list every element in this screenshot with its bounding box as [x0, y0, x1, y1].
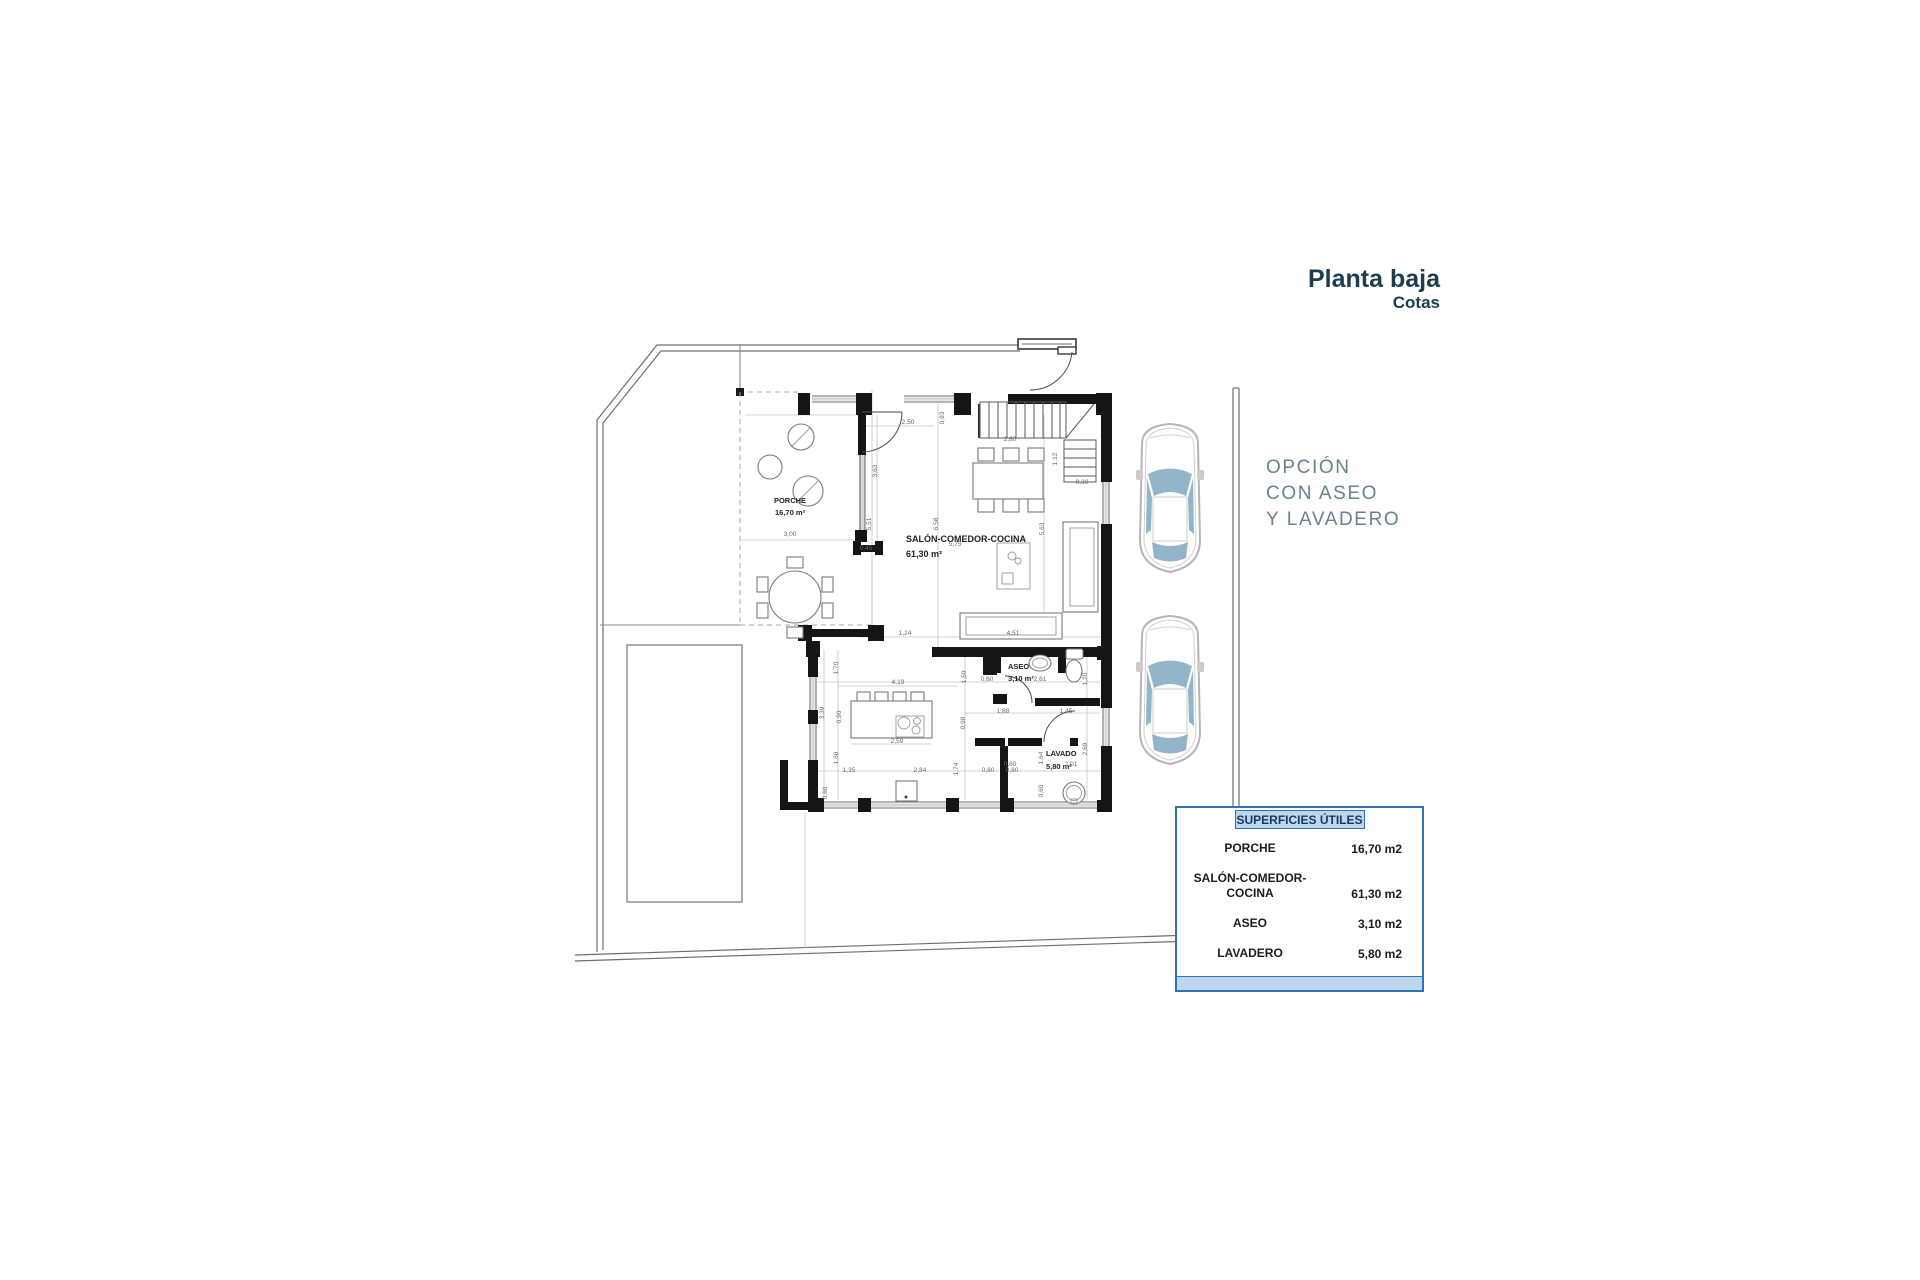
surface-area-value: 61,30 m2 [1309, 887, 1408, 901]
svg-text:4,51: 4,51 [1007, 630, 1020, 637]
lavadero-fixtures [1063, 782, 1085, 804]
coffee-table [997, 543, 1030, 589]
surface-area-value: 16,70 m2 [1309, 842, 1408, 856]
surfaces-table: SUPERFICIES ÚTILES PORCHE16,70 m2SALÓN-C… [1175, 806, 1424, 992]
svg-text:ASEO: ASEO [1008, 662, 1029, 671]
svg-text:0,90: 0,90 [836, 710, 843, 723]
surfaces-table-header: SUPERFICIES ÚTILES [1235, 810, 1365, 829]
dining-table [973, 448, 1044, 512]
surfaces-table-footer [1177, 976, 1422, 990]
svg-text:1,74: 1,74 [953, 762, 960, 775]
surfaces-table-row: PORCHE16,70 m2 [1191, 841, 1408, 856]
svg-text:0,93: 0,93 [939, 411, 946, 424]
svg-text:1,24: 1,24 [899, 630, 912, 637]
surface-name: ASEO [1191, 916, 1309, 931]
surface-area-value: 5,80 m2 [1309, 947, 1408, 961]
round-table [769, 571, 821, 623]
svg-text:6,58: 6,58 [933, 517, 940, 530]
svg-text:0,80: 0,80 [982, 767, 995, 774]
svg-text:1,60: 1,60 [833, 751, 840, 764]
floor-plan-drawing: PORCHE16,70 m²SALÓN-COMEDOR-COCINA61,30 … [0, 0, 1920, 1280]
svg-text:5,63: 5,63 [1039, 522, 1046, 535]
surface-name: PORCHE [1191, 841, 1309, 856]
floor-plan-page: { "title": { "heading": "Planta baja", "… [0, 0, 1920, 1280]
svg-text:1,20: 1,20 [1082, 672, 1089, 685]
svg-text:2,50: 2,50 [902, 419, 915, 426]
svg-text:0,45: 0,45 [860, 545, 873, 552]
svg-text:4,19: 4,19 [892, 679, 905, 686]
svg-text:3,00: 3,00 [784, 531, 797, 538]
option-note: OPCIÓN CON ASEO Y LAVADERO [1266, 455, 1400, 533]
svg-text:1,88: 1,88 [997, 708, 1010, 715]
svg-text:2,80: 2,80 [1004, 436, 1017, 443]
svg-text:1,12: 1,12 [1052, 452, 1059, 465]
svg-text:LAVADO: LAVADO [1046, 749, 1077, 758]
page-title: Planta baja [1140, 266, 1440, 293]
svg-text:5,51: 5,51 [866, 517, 873, 530]
option-note-line: CON ASEO [1266, 481, 1400, 507]
svg-text:2,69: 2,69 [1082, 742, 1089, 755]
svg-text:0,30: 0,30 [1076, 479, 1089, 486]
surfaces-table-row: ASEO3,10 m2 [1191, 916, 1408, 931]
page-subtitle: Cotas [1140, 293, 1440, 313]
svg-text:0,60: 0,60 [822, 786, 829, 799]
svg-text:5,75: 5,75 [949, 541, 962, 548]
svg-text:PORCHE: PORCHE [774, 496, 806, 505]
svg-text:1,64: 1,64 [1038, 751, 1045, 764]
entrance-gate [1018, 339, 1076, 390]
svg-text:2,59: 2,59 [891, 738, 904, 745]
surface-name: LAVADERO [1191, 946, 1309, 961]
bottom-cabinet [896, 781, 917, 801]
svg-text:3,39: 3,39 [819, 706, 826, 719]
svg-text:16,70 m²: 16,70 m² [775, 508, 806, 517]
title-block: Planta baja Cotas [1140, 266, 1440, 313]
surface-area-value: 3,10 m2 [1309, 917, 1408, 931]
surfaces-table-row: SALÓN-COMEDOR-COCINA61,30 m2 [1191, 871, 1408, 901]
kitchen-island [851, 692, 932, 738]
svg-text:2,84: 2,84 [914, 767, 927, 774]
toilet [1066, 649, 1083, 659]
sofa [1063, 522, 1098, 612]
svg-text:1,70: 1,70 [833, 661, 840, 674]
surface-name: SALÓN-COMEDOR-COCINA [1191, 871, 1309, 901]
svg-text:0,80: 0,80 [1006, 767, 1019, 774]
svg-text:3,10 m²: 3,10 m² [1008, 674, 1034, 683]
pool [627, 645, 742, 902]
svg-text:0,60: 0,60 [1038, 784, 1045, 797]
svg-text:1,35: 1,35 [843, 767, 856, 774]
car-icon-2 [1136, 616, 1204, 764]
svg-text:0,98: 0,98 [960, 716, 967, 729]
surfaces-table-rows: PORCHE16,70 m2SALÓN-COMEDOR-COCINA61,30 … [1177, 829, 1422, 976]
svg-text:1,50: 1,50 [961, 670, 968, 683]
option-note-line: OPCIÓN [1266, 455, 1400, 481]
car-icon-1 [1136, 424, 1204, 572]
option-note-line: Y LAVADERO [1266, 507, 1400, 533]
svg-text:1,45: 1,45 [1060, 708, 1073, 715]
svg-text:2,01: 2,01 [1065, 761, 1078, 768]
svg-text:2,61: 2,61 [1034, 676, 1047, 683]
svg-text:3,63: 3,63 [872, 464, 879, 477]
svg-text:SALÓN-COMEDOR-COCINA: SALÓN-COMEDOR-COCINA [906, 533, 1026, 544]
svg-text:0,60: 0,60 [981, 676, 994, 683]
svg-text:61,30 m²: 61,30 m² [906, 549, 942, 559]
surfaces-table-row: LAVADERO5,80 m2 [1191, 946, 1408, 961]
